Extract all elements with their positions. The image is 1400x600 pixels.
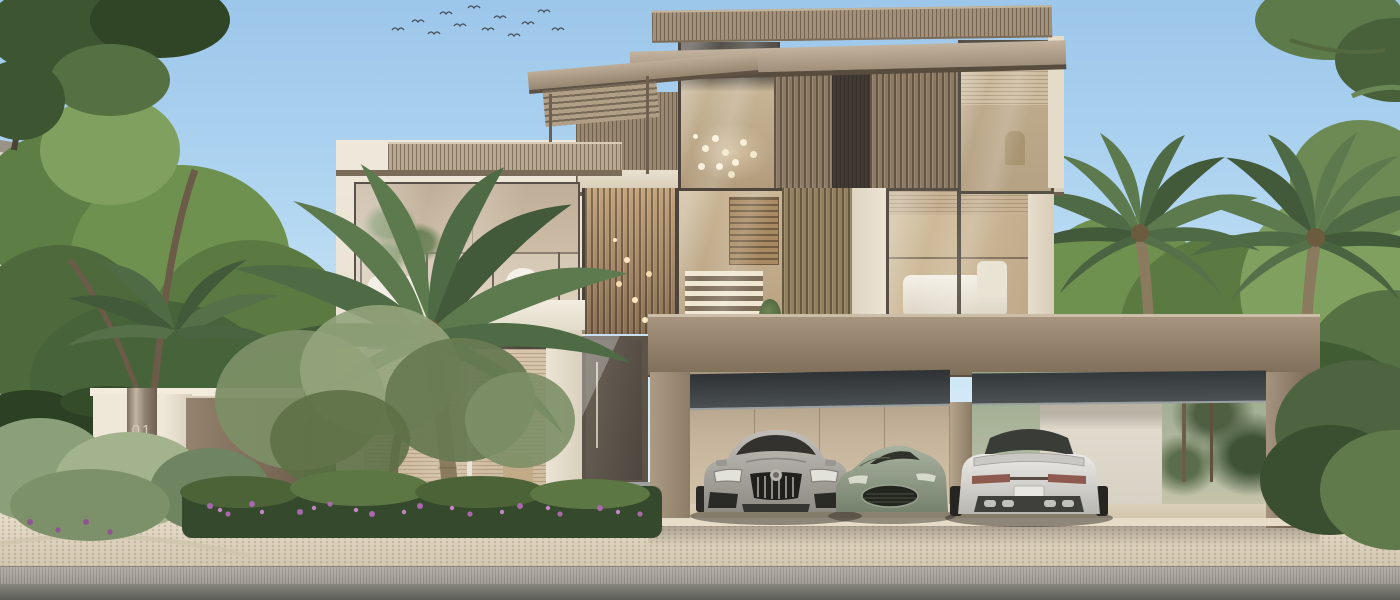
villa-render-scene: 01 — [0, 0, 1400, 600]
top-left-branch-overhang — [0, 0, 230, 150]
driveway-curb-curve — [0, 536, 250, 556]
foreground-vegetation — [0, 0, 1400, 600]
right-front-bushes — [1260, 360, 1400, 550]
top-right-branch-overhang — [1255, 0, 1400, 102]
